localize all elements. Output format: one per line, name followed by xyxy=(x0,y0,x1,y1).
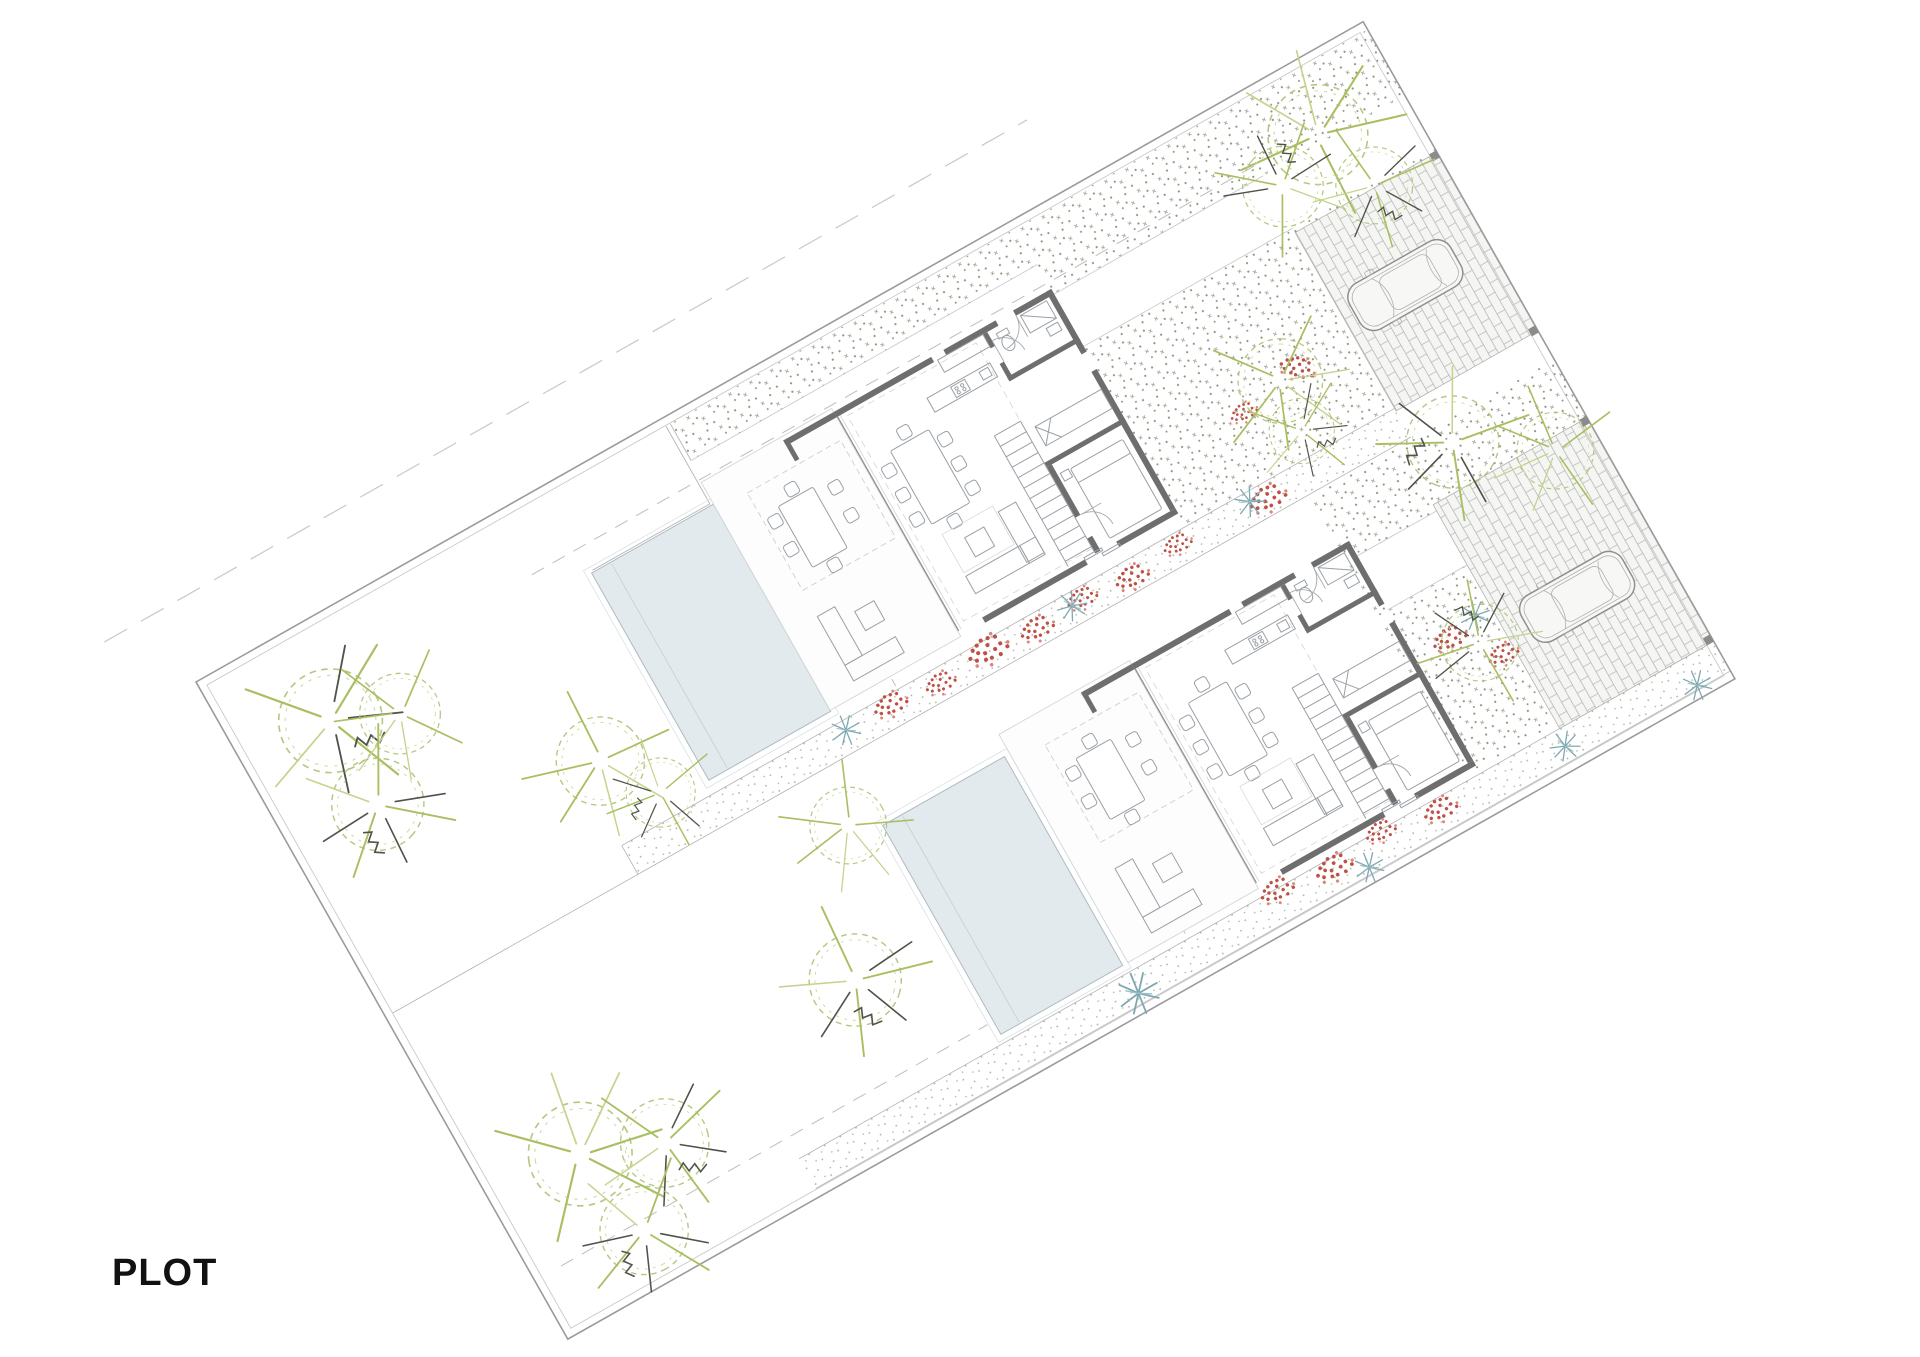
rotated-site-plan xyxy=(196,22,1735,1339)
site-plan-canvas: PLOT xyxy=(0,0,1920,1357)
plot-label: PLOT xyxy=(112,1252,217,1295)
